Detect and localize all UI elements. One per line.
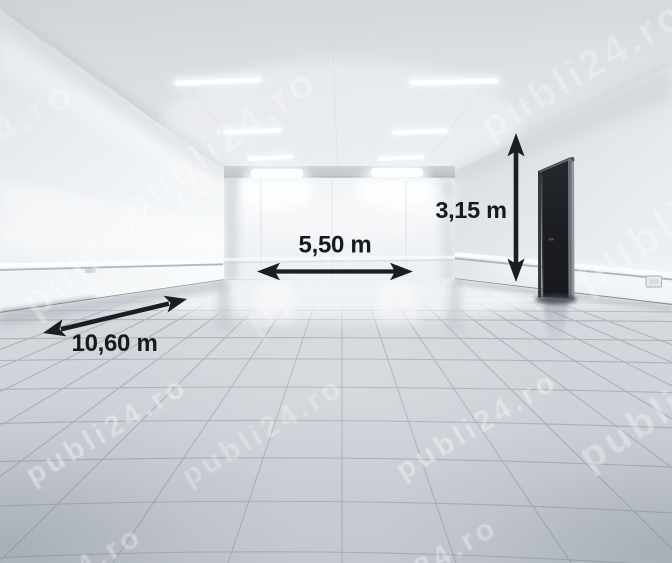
svg-text:5,50 m: 5,50 m [299,232,372,259]
svg-text:10,60 m: 10,60 m [72,330,158,357]
svg-text:3,15 m: 3,15 m [435,197,506,223]
